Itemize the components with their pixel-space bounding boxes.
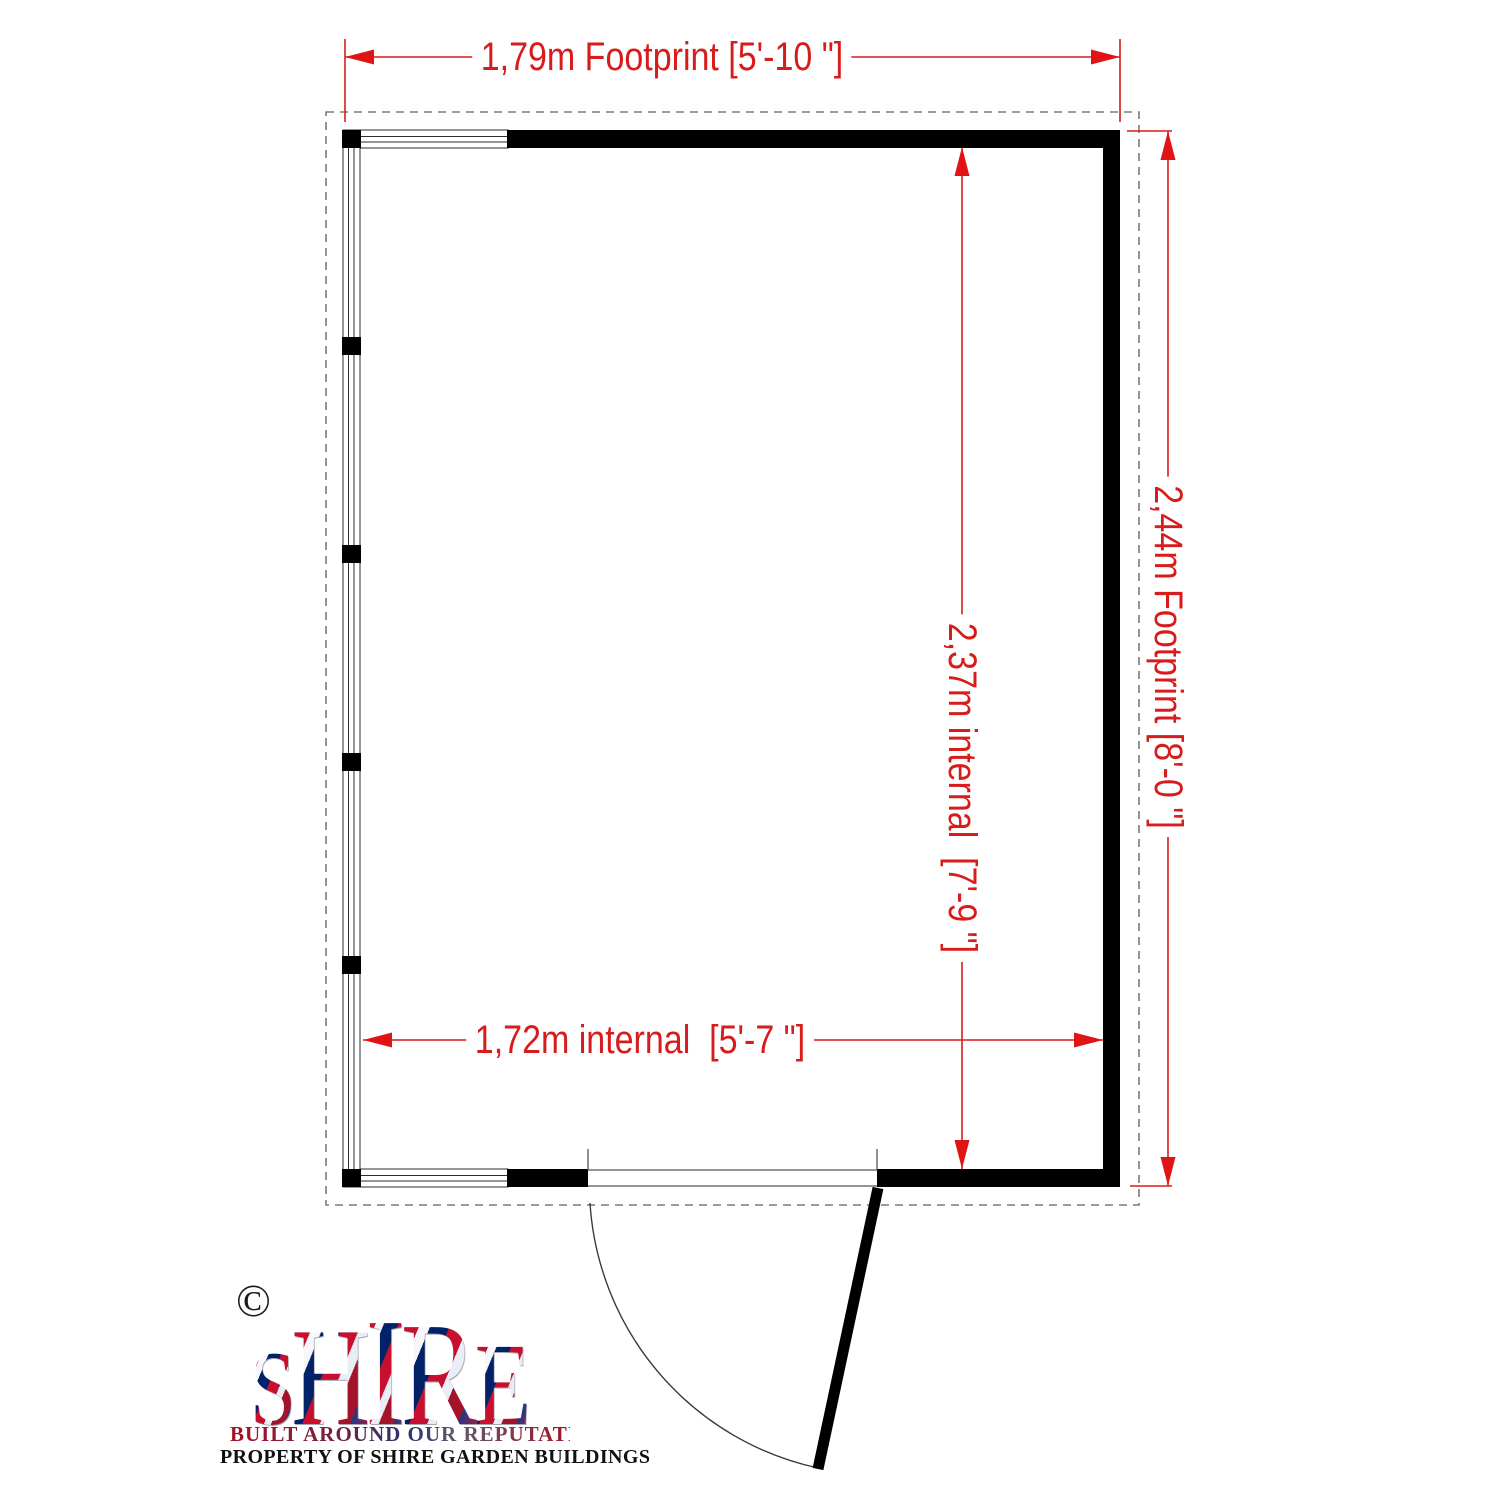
mullion-post bbox=[342, 956, 361, 974]
mullion-post bbox=[342, 753, 361, 771]
mullion-post bbox=[342, 1169, 361, 1187]
wall-top bbox=[507, 130, 1120, 148]
mullion-post bbox=[342, 337, 361, 355]
dimension-label-footprint-depth: 2,44m Footprint [8'-0 "] bbox=[1145, 477, 1191, 838]
wall-bottom-left-segment bbox=[507, 1169, 588, 1187]
floor-plan-drawing bbox=[0, 0, 1500, 1500]
door bbox=[588, 1149, 878, 1469]
door-swing-arc bbox=[590, 1203, 818, 1468]
dimension-label-internal-depth: 2,37m internal [7'-9 "] bbox=[939, 614, 985, 961]
floor-plan-page: 1,79m Footprint [5'-10 "] 2,44m Footprin… bbox=[0, 0, 1500, 1500]
dimension-lines bbox=[345, 39, 1172, 1186]
property-line: PROPERTY OF SHIRE GARDEN BUILDINGS bbox=[220, 1446, 580, 1469]
mullion-post bbox=[342, 130, 361, 148]
wall-right bbox=[1103, 130, 1120, 1187]
shire-logo: © SHIRE BUILT AROUND OUR REPUTATION PROP… bbox=[230, 1278, 570, 1488]
dimension-label-footprint-width: 1,79m Footprint [5'-10 "] bbox=[472, 34, 852, 80]
dimension-label-internal-width: 1,72m internal [5'-7 "] bbox=[466, 1017, 813, 1063]
window-wall-left bbox=[343, 130, 360, 1187]
dimension-arrows bbox=[345, 50, 1176, 1187]
mullion-post bbox=[342, 545, 361, 563]
wall-bottom-right-segment bbox=[877, 1169, 1120, 1187]
door-leaf bbox=[818, 1188, 878, 1469]
brand-tagline: BUILT AROUND OUR REPUTATION bbox=[230, 1422, 570, 1447]
